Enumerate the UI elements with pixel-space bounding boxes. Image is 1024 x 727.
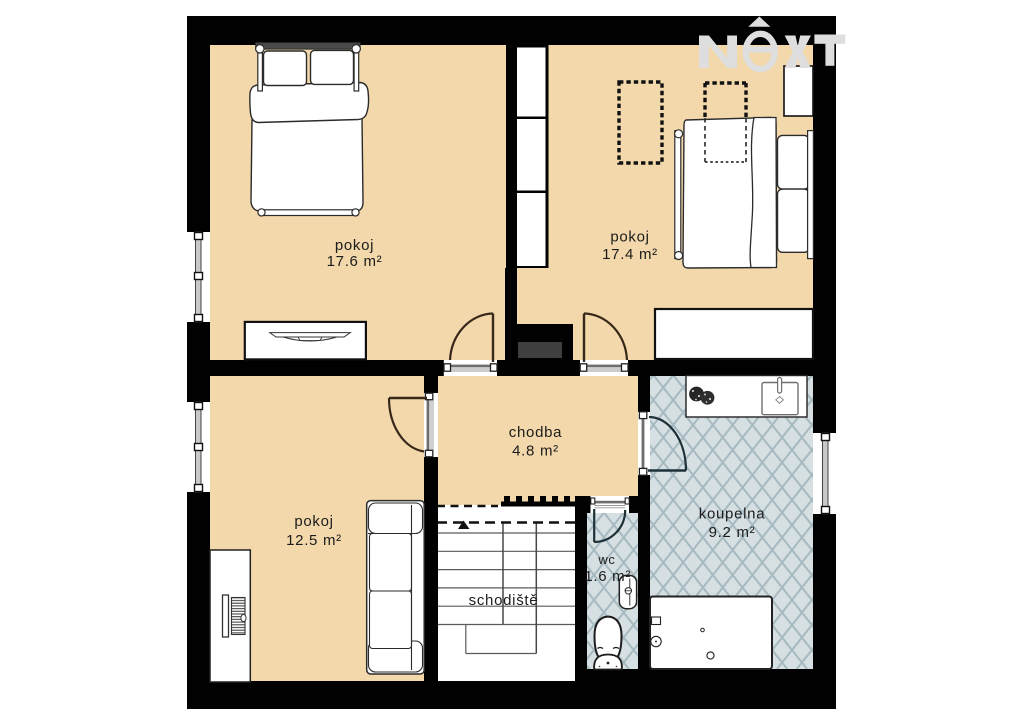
svg-text:1.6 m²: 1.6 m² [584, 568, 631, 585]
svg-text:pokoj: pokoj [294, 513, 333, 530]
svg-text:wc: wc [597, 552, 615, 567]
svg-text:9.2 m²: 9.2 m² [709, 524, 756, 541]
svg-text:pokoj: pokoj [610, 229, 649, 246]
svg-text:17.6 m²: 17.6 m² [327, 253, 383, 270]
svg-text:schodiště: schodiště [469, 592, 539, 609]
svg-text:pokoj: pokoj [335, 237, 374, 254]
svg-text:12.5 m²: 12.5 m² [286, 532, 342, 549]
svg-text:chodba: chodba [509, 424, 562, 441]
svg-text:17.4 m²: 17.4 m² [602, 246, 658, 263]
svg-text:koupelna: koupelna [699, 506, 766, 523]
svg-text:4.8 m²: 4.8 m² [512, 443, 559, 460]
